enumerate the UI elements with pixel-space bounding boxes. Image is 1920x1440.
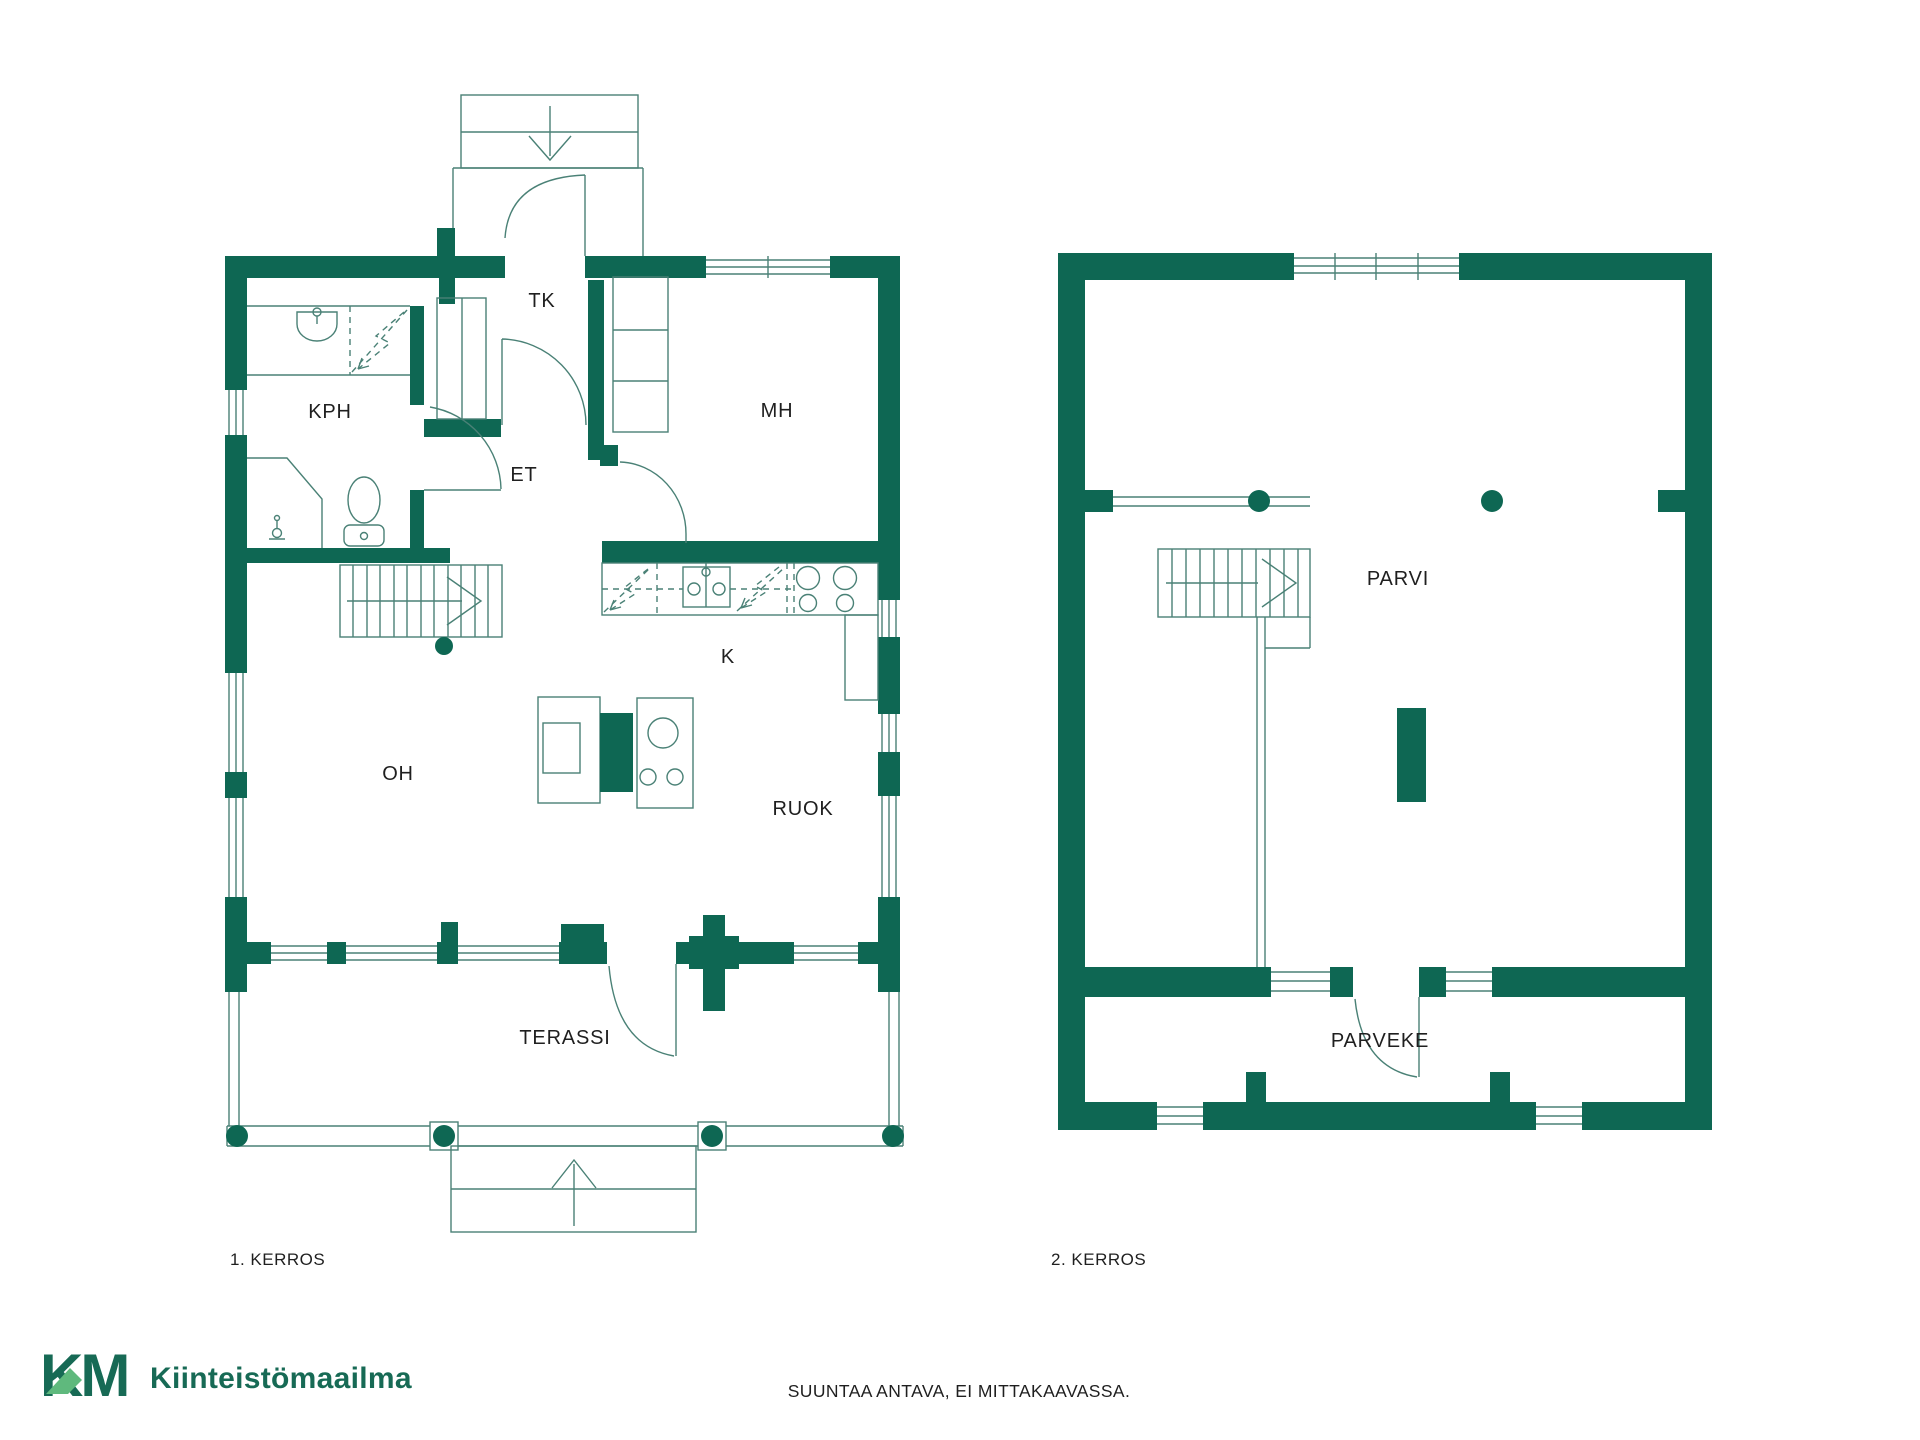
terrace-steps-arrow-icon <box>552 1160 596 1226</box>
stair-opening-railing <box>1257 617 1310 967</box>
room-label-terassi: TERASSI <box>519 1027 610 1049</box>
kitchen-sink-icon <box>683 563 730 607</box>
floorplan-second-floor: PARVI PARVEKE 2. KERROS <box>1051 253 1712 1269</box>
entry-door-arc <box>505 175 585 256</box>
bedroom-closet <box>613 277 668 432</box>
room-label-ruok: RUOK <box>773 798 834 820</box>
entry-arrow-icon <box>529 106 571 160</box>
column-dot <box>1481 490 1503 512</box>
toilet-icon <box>344 477 384 546</box>
room-label-mh: MH <box>761 400 794 422</box>
bedroom-door-arc <box>620 462 686 543</box>
stairs-icon-floor1 <box>340 565 502 655</box>
bathroom-fixtures <box>247 306 410 548</box>
terrace-steps <box>451 1146 696 1232</box>
floor1-title: 1. KERROS <box>230 1250 325 1269</box>
kitchen-counter <box>602 563 878 700</box>
shower-corner <box>247 458 322 548</box>
fireplace-icon <box>538 697 693 808</box>
vestibule-door-arc <box>502 339 586 425</box>
chimney-block-floor2 <box>1397 708 1426 802</box>
km-logo: KM Kiinteistömaailma <box>40 1342 412 1409</box>
shower-icon <box>352 310 407 372</box>
hall-closet <box>437 298 486 419</box>
stairs-arrow-head <box>1262 559 1296 607</box>
room-label-k: K <box>721 646 735 668</box>
room-label-kph: KPH <box>308 401 352 423</box>
column-dot <box>1248 490 1270 512</box>
chimney-block-floor1 <box>689 915 739 1011</box>
terrace-posts <box>226 1125 904 1147</box>
counter-return <box>845 615 878 700</box>
room-label-tk: TK <box>528 290 555 312</box>
sink-icon <box>297 308 337 341</box>
exterior-walls-floor2 <box>1058 253 1712 1130</box>
appliance-reservation-icon <box>604 567 651 612</box>
loft-railing <box>1113 490 1503 512</box>
floorplan-canvas: KPH TK ET MH K OH RUOK TERASSI 1. KERROS <box>0 0 1920 1440</box>
entry-porch <box>453 95 643 256</box>
stove-icon <box>797 567 857 612</box>
floorplan-page: KPH TK ET MH K OH RUOK TERASSI 1. KERROS <box>0 0 1920 1440</box>
floor2-title: 2. KERROS <box>1051 1250 1146 1269</box>
windows-floor1 <box>229 256 896 960</box>
room-label-oh: OH <box>382 763 414 785</box>
column-dot <box>435 637 453 655</box>
footer: KM Kiinteistömaailma SUUNTAA ANTAVA, EI … <box>40 1342 1130 1409</box>
exterior-walls-floor1 <box>225 228 900 1011</box>
room-label-parveke: PARVEKE <box>1331 1030 1429 1052</box>
stairs-icon-floor2 <box>1158 549 1310 967</box>
room-label-parvi: PARVI <box>1367 568 1429 590</box>
floorplan-first-floor: KPH TK ET MH K OH RUOK TERASSI 1. KERROS <box>225 95 904 1269</box>
km-logo-mark: KM <box>40 1342 127 1409</box>
brand-name: Kiinteistömaailma <box>150 1362 412 1395</box>
terrace-door-arc <box>609 964 676 1056</box>
room-label-et: ET <box>510 464 537 486</box>
floor-drain-icon <box>269 516 285 540</box>
disclaimer-text: SUUNTAA ANTAVA, EI MITTAKAAVASSA. <box>788 1381 1131 1401</box>
